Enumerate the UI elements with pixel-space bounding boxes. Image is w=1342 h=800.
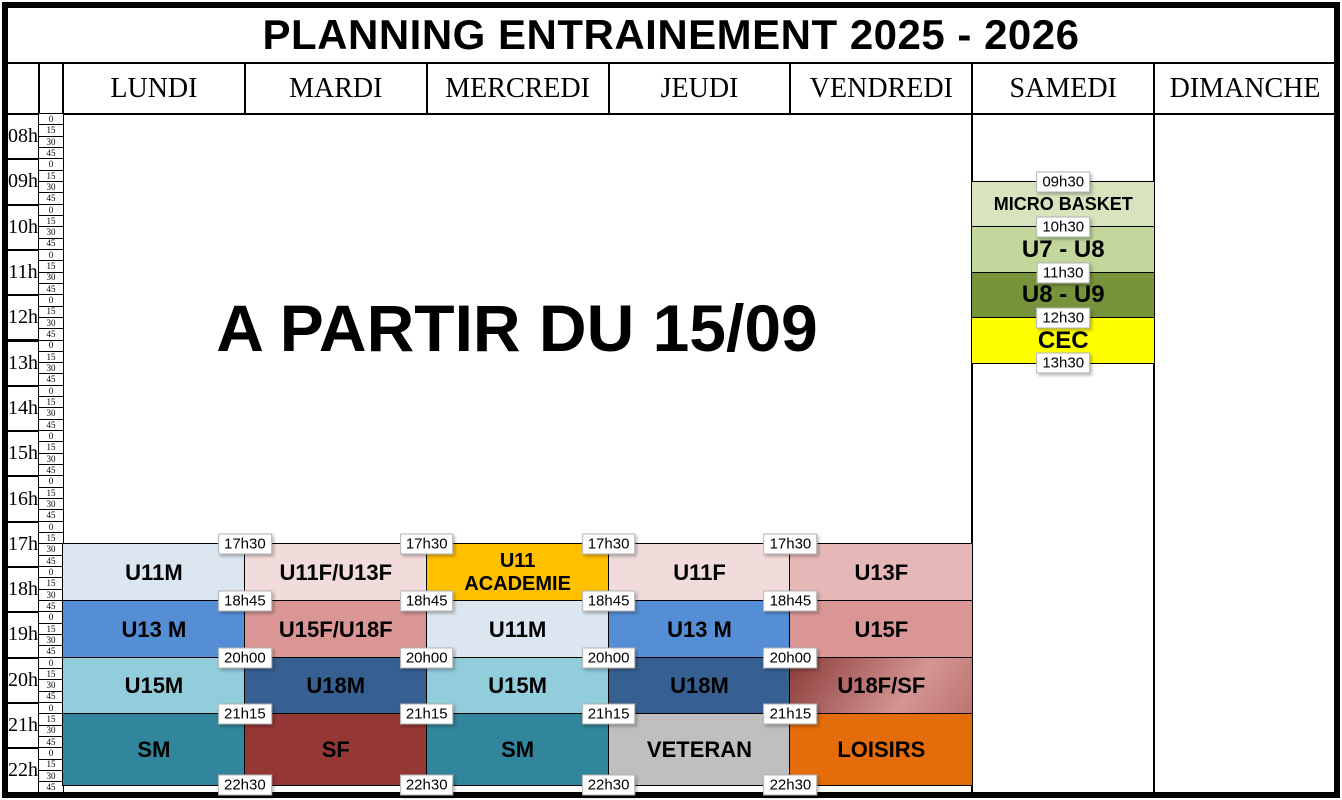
time-label-17h30: 17h30: [582, 534, 636, 555]
time-label-21h15: 21h15: [764, 704, 818, 725]
time-label-20h00: 20h00: [400, 647, 454, 668]
time-label-10h30: 10h30: [1036, 217, 1090, 238]
time-label-21h15: 21h15: [582, 704, 636, 725]
time-label-22h30: 22h30: [218, 775, 272, 796]
time-label-17h30: 17h30: [218, 534, 272, 555]
day-header-samedi: SAMEDI: [971, 62, 1155, 115]
hour-label-08h: 08h: [6, 113, 40, 160]
corner-cell-quarters: [38, 62, 64, 115]
day-header-vendredi: VENDREDI: [789, 62, 973, 115]
time-label-18h45: 18h45: [218, 590, 272, 611]
hour-label-10h: 10h: [6, 204, 40, 251]
session-label-line: U11: [500, 550, 536, 573]
hour-label-18h: 18h: [6, 566, 40, 613]
day-header-mercredi: MERCREDI: [426, 62, 610, 115]
planning-board: PLANNING ENTRAINEMENT 2025 - 2026 A PART…: [0, 0, 1342, 800]
time-label-22h30: 22h30: [582, 775, 636, 796]
start-date-notice: A PARTIR DU 15/09: [62, 280, 972, 376]
quarter-cell: 45: [38, 781, 64, 794]
time-label-22h30: 22h30: [400, 775, 454, 796]
time-label-22h30: 22h30: [764, 775, 818, 796]
corner-cell-hours: [6, 62, 40, 115]
day-header-lundi: LUNDI: [62, 62, 246, 115]
dimanche-column: [1153, 113, 1337, 792]
time-label-21h15: 21h15: [218, 704, 272, 725]
hour-label-12h: 12h: [6, 294, 40, 341]
time-label-20h00: 20h00: [764, 647, 818, 668]
hour-label-22h: 22h: [6, 747, 40, 794]
time-label-09h30: 09h30: [1036, 171, 1090, 192]
hour-label-15h: 15h: [6, 430, 40, 477]
hour-label-09h: 09h: [6, 158, 40, 205]
planning-title: PLANNING ENTRAINEMENT 2025 - 2026: [8, 8, 1334, 64]
hour-label-11h: 11h: [6, 249, 40, 296]
hour-label-16h: 16h: [6, 475, 40, 522]
day-header-mardi: MARDI: [244, 62, 428, 115]
time-label-11h30: 11h30: [1037, 262, 1090, 283]
hour-label-14h: 14h: [6, 385, 40, 432]
time-label-12h30: 12h30: [1036, 307, 1090, 328]
time-label-18h45: 18h45: [400, 590, 454, 611]
time-label-20h00: 20h00: [582, 647, 636, 668]
time-label-17h30: 17h30: [764, 534, 818, 555]
time-label-18h45: 18h45: [764, 590, 818, 611]
hour-label-20h: 20h: [6, 657, 40, 704]
time-label-18h45: 18h45: [582, 590, 636, 611]
hour-label-21h: 21h: [6, 702, 40, 749]
day-header-jeudi: JEUDI: [608, 62, 792, 115]
hour-label-13h: 13h: [6, 340, 40, 387]
hour-label-17h: 17h: [6, 521, 40, 568]
time-label-21h15: 21h15: [400, 704, 454, 725]
hour-label-19h: 19h: [6, 611, 40, 658]
session-label-line: ACADEMIE: [464, 573, 571, 596]
time-label-13h30: 13h30: [1036, 353, 1090, 374]
day-header-dimanche: DIMANCHE: [1153, 62, 1337, 115]
time-label-20h00: 20h00: [218, 647, 272, 668]
time-label-17h30: 17h30: [400, 534, 454, 555]
